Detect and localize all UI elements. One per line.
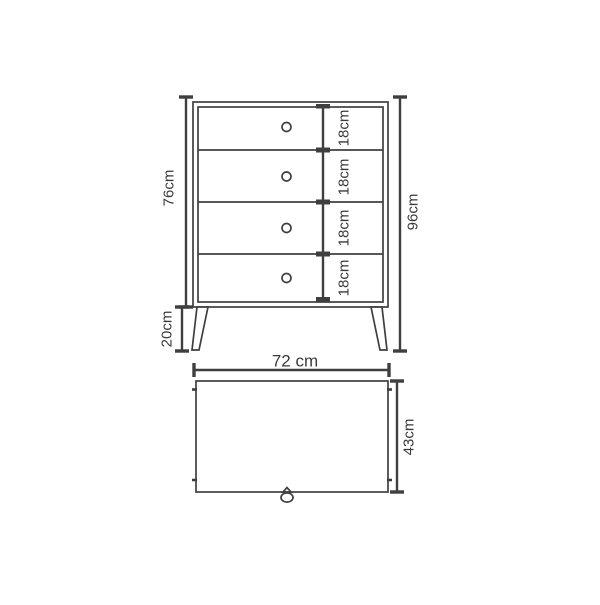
furniture-dimension-drawing: 76cm 20cm 96cm 18cm 18cm 18cm 18cm 72 cm	[0, 0, 600, 600]
drawer-height-label-2: 18cm	[336, 159, 353, 196]
drawer-knob-icon-3	[282, 224, 291, 233]
drawer-height-label-1: 18cm	[336, 110, 353, 147]
drawer-height-label-3: 18cm	[336, 210, 353, 247]
dim-tick-18-4	[316, 297, 330, 302]
canvas-background	[0, 0, 600, 600]
depth-label: 43cm	[401, 419, 418, 456]
total-height-label: 96cm	[405, 194, 422, 231]
body-height-label: 76cm	[161, 170, 178, 207]
drawer-knob-icon-2	[282, 172, 291, 181]
leg-height-label: 20cm	[159, 311, 176, 348]
dim-tick-18-0	[316, 104, 330, 109]
drawer-height-label-4: 18cm	[336, 260, 353, 297]
drawer-knob-icon-4	[282, 274, 291, 283]
dim-tick-18-3	[316, 252, 330, 257]
top-view-knob-icon	[281, 493, 293, 502]
dim-tick-18-1	[316, 148, 330, 153]
width-label: 72 cm	[272, 352, 318, 371]
dim-tick-18-2	[316, 200, 330, 205]
drawer-knob-icon-1	[282, 123, 291, 132]
